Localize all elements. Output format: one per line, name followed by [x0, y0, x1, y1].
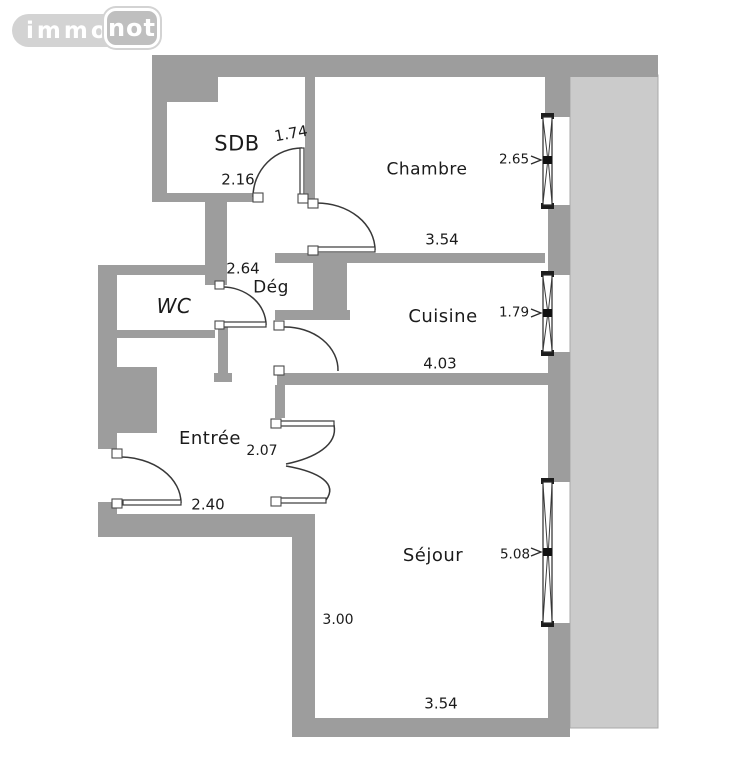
window-cuisine: [531, 271, 554, 356]
wall-entree-closet: [117, 367, 157, 433]
wall-deg-bar: [275, 310, 350, 320]
door-sdb: [253, 148, 308, 203]
double-door-sejour: [271, 419, 334, 506]
dim-label-deg-length: 2.64: [226, 262, 259, 277]
dim-label-entree-door: 2.07: [246, 444, 277, 458]
room-label-cuisine: Cuisine: [408, 308, 477, 326]
door-cuisine: [274, 321, 338, 375]
room-label-deg: Dég: [253, 280, 289, 297]
logo-text-not: not: [108, 14, 156, 42]
dim-label-chambre-width: 3.54: [425, 233, 458, 248]
floor-plan-page: SDB Chambre WC Dég Cuisine Entrée Séjour…: [0, 0, 750, 774]
wall-sejour-left: [292, 537, 315, 737]
wall-wc-door-stub: [218, 327, 228, 374]
room-label-chambre: Chambre: [387, 162, 468, 179]
dim-label-sejour-width: 3.54: [424, 697, 457, 712]
floor-plan-drawing: [0, 0, 750, 774]
window-sejour: [531, 478, 554, 627]
dim-label-cuisine-width: 4.03: [423, 357, 456, 372]
wall-sdb-chambre: [305, 77, 315, 203]
room-label-entree: Entrée: [179, 430, 241, 448]
wall-top: [152, 55, 658, 77]
wall-sejour-bottom: [292, 718, 570, 737]
wall-right-lower: [548, 623, 570, 737]
wall-cuisine-bottom: [277, 373, 548, 385]
dim-label-sejour-window: 5.08: [500, 548, 530, 562]
wall-deg-column: [313, 263, 347, 312]
dim-label-cuisine-window: 1.79: [499, 306, 529, 320]
room-label-wc: WC: [157, 296, 192, 316]
dim-label-sdb-width: 2.16: [221, 173, 254, 188]
wall-right-mid2: [548, 352, 570, 482]
room-label-sdb: SDB: [214, 134, 259, 155]
terrace-area: [570, 75, 658, 728]
wall-right-top: [545, 55, 570, 117]
logo-not-block: not: [104, 8, 160, 48]
dim-label-sejour-depth: 3.00: [322, 613, 353, 627]
window-chambre: [531, 113, 554, 209]
wall-left-mid: [98, 265, 117, 449]
wall-right-mid1: [548, 205, 570, 275]
wall-wc-stub-foot: [214, 373, 232, 382]
dim-label-chambre-window: 2.65: [499, 153, 529, 167]
dim-label-entree-width: 2.40: [191, 498, 224, 513]
wall-wc-bottom: [98, 330, 215, 338]
logo-text-immo: immo: [26, 18, 110, 44]
immonot-logo: immo not: [12, 8, 160, 50]
wall-doorway-leg: [275, 385, 285, 418]
wall-mid-column: [205, 198, 227, 285]
door-chambre: [308, 199, 375, 255]
door-entry: [112, 449, 181, 508]
room-label-sejour: Séjour: [403, 547, 463, 565]
wall-left-upper: [152, 55, 167, 202]
wall-entree-bottom: [98, 514, 315, 537]
